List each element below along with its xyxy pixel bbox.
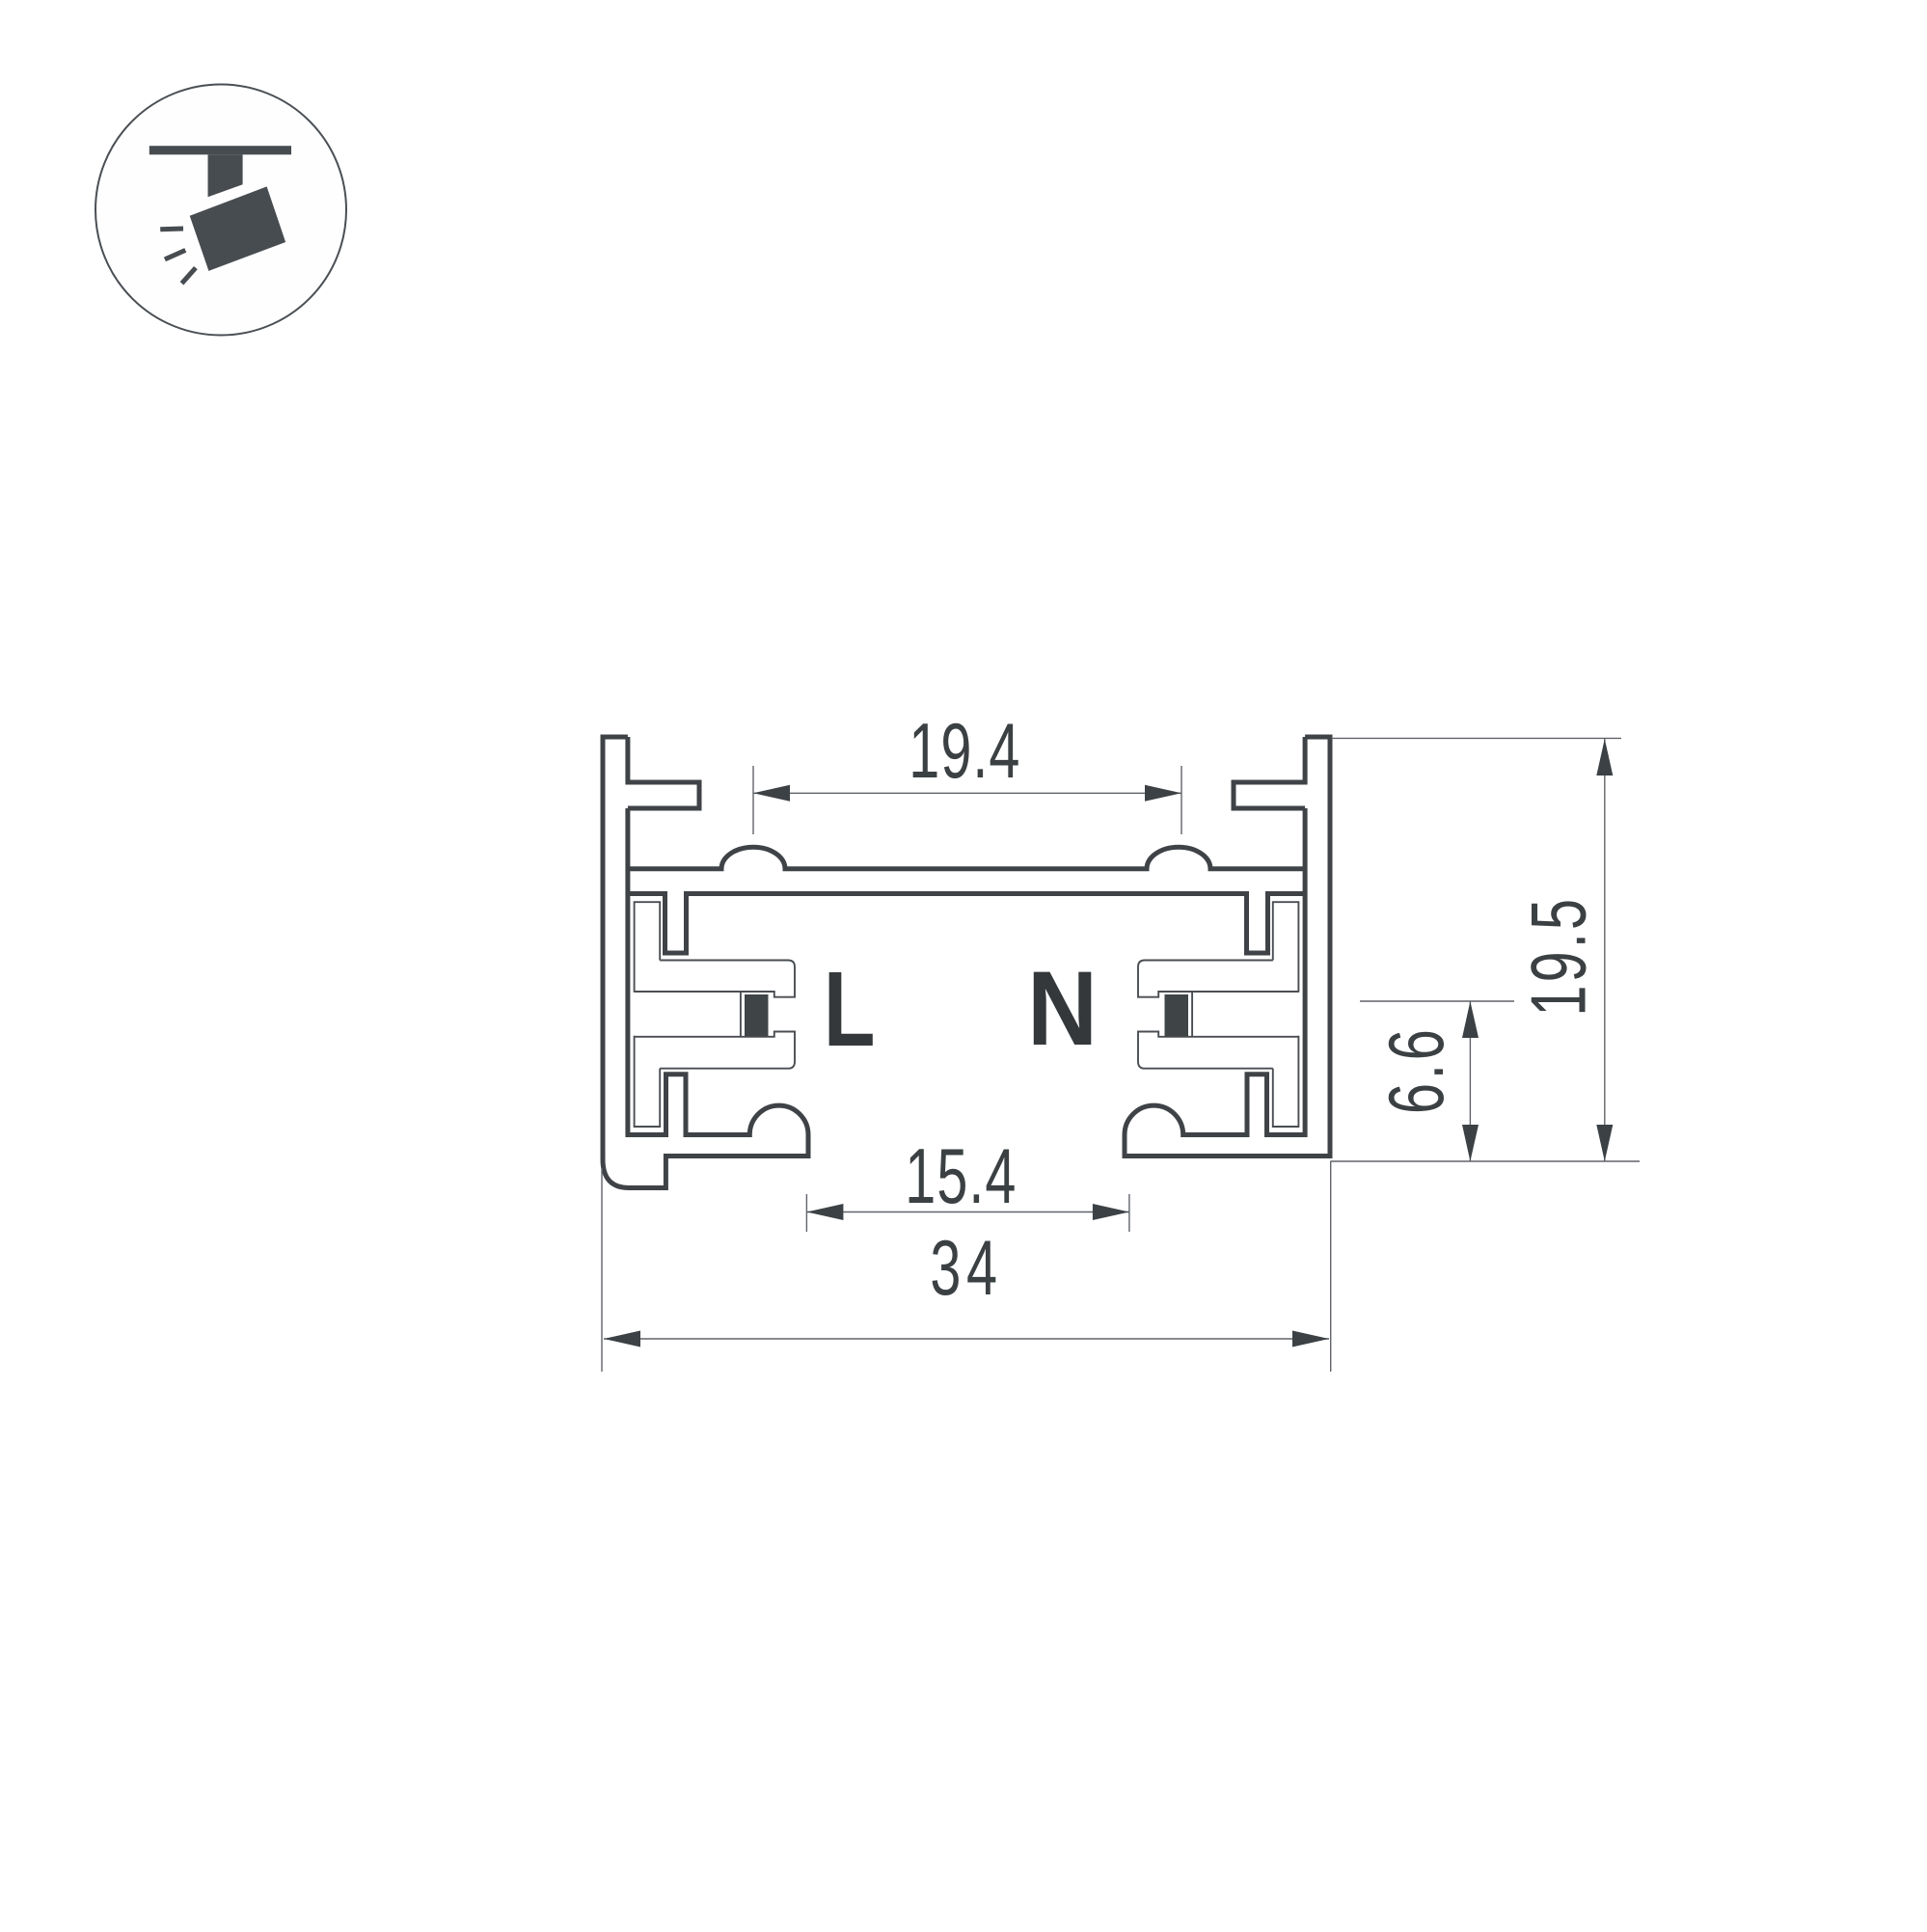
svg-text:N: N xyxy=(1027,949,1098,1068)
svg-text:19.4: 19.4 xyxy=(909,706,1020,794)
svg-text:6.6: 6.6 xyxy=(1371,1025,1459,1114)
svg-text:L: L xyxy=(824,951,876,1070)
svg-text:15.4: 15.4 xyxy=(905,1131,1017,1219)
svg-text:19.5: 19.5 xyxy=(1514,896,1602,1017)
svg-text:34: 34 xyxy=(930,1223,1002,1311)
